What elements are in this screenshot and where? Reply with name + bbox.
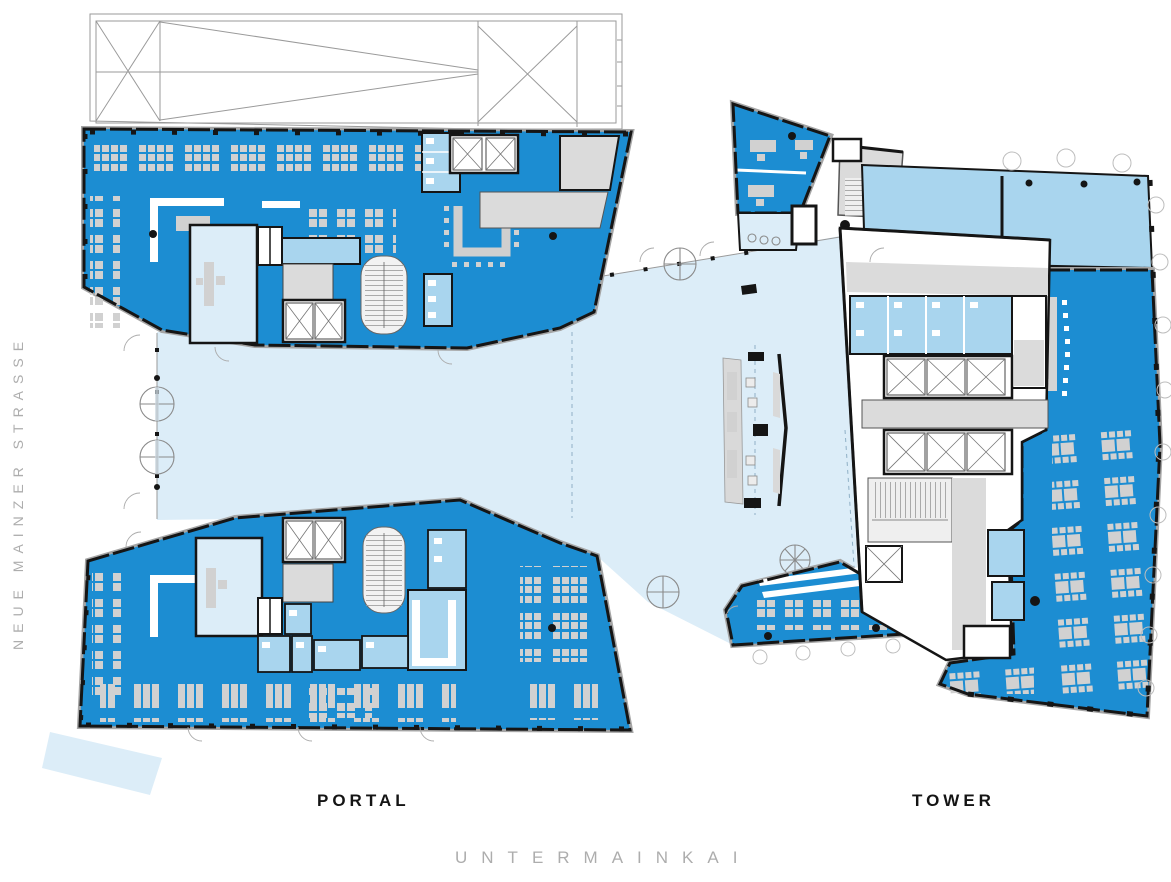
building-label-portal: PORTAL bbox=[317, 791, 410, 811]
tower-upper-wing bbox=[733, 104, 830, 213]
elevators-upper bbox=[450, 135, 518, 173]
street-label-untermainkai: UNTERMAINKAI bbox=[455, 848, 751, 868]
neighbor-building-outline bbox=[90, 14, 622, 129]
tower-white-room bbox=[792, 206, 816, 244]
tower-elevator-bank-1 bbox=[884, 356, 1012, 398]
tree bbox=[140, 440, 174, 474]
tower-core bbox=[840, 228, 1050, 660]
stair-upper bbox=[361, 256, 407, 334]
atrium-south-wedge bbox=[42, 732, 162, 795]
elevators-core-lower bbox=[283, 518, 345, 562]
tree bbox=[664, 248, 696, 280]
building-label-tower: TOWER bbox=[912, 791, 995, 811]
portal-lower-wing bbox=[80, 500, 630, 730]
tower-stair bbox=[868, 478, 952, 542]
tree bbox=[647, 576, 679, 608]
floor-plan-drawing bbox=[0, 0, 1171, 882]
stair-lower bbox=[363, 527, 405, 613]
floorplan-canvas: NEUE MAINZER STRASSE PORTAL TOWER UNTERM… bbox=[0, 0, 1171, 882]
street-label-neue-mainzer-strasse: NEUE MAINZER STRASSE bbox=[10, 110, 32, 650]
elevators-core-upper bbox=[283, 300, 345, 342]
tree bbox=[140, 387, 174, 421]
tower-elevator-bank-2 bbox=[884, 430, 1012, 474]
